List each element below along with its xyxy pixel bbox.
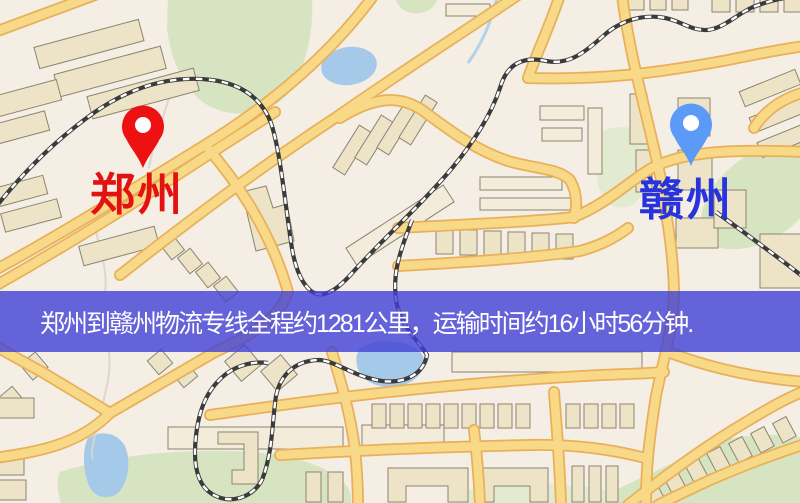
lake-bottom-left: [84, 433, 128, 497]
origin-city-label: 郑州: [90, 173, 184, 218]
route-info-banner: 郑州到赣州物流专线全程约1281公里，运输时间约16小时56分钟.: [0, 291, 800, 352]
origin-pin-hole: [135, 117, 151, 133]
map-canvas: [0, 0, 800, 503]
destination-city-label: 赣州: [639, 178, 733, 223]
destination-pin-hole: [683, 115, 699, 131]
route-map-image: 郑州 赣州 郑州到赣州物流专线全程约1281公里，运输时间约16小时56分钟.: [0, 0, 800, 503]
route-info-text: 郑州到赣州物流专线全程约1281公里，运输时间约16小时56分钟.: [40, 304, 692, 340]
